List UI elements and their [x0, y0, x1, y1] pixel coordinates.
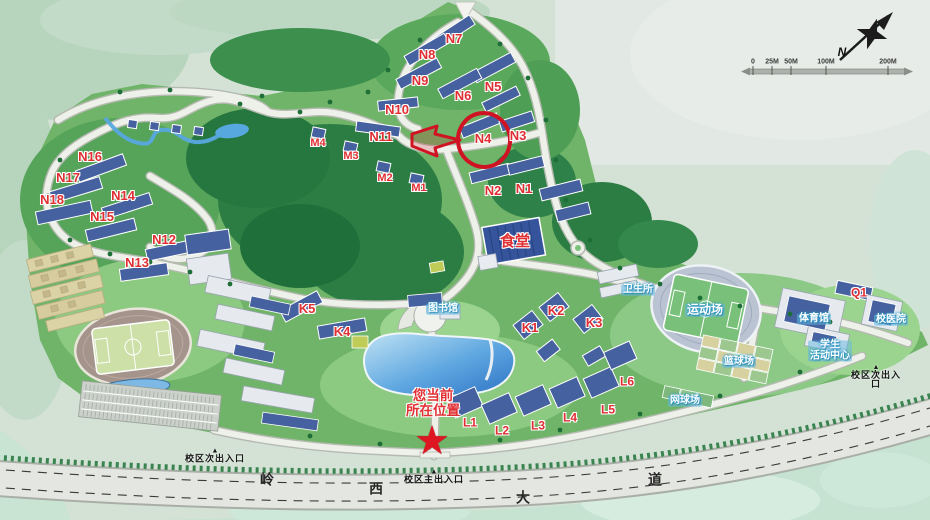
campus-map: N1N2N3N4N5N6N7N8N9N10N11N12N13N14N15N16N… [0, 0, 930, 520]
compass-north-label: N [838, 45, 847, 59]
campus-map-canvas [0, 0, 930, 520]
current-location-label: 您当前所在位置 [406, 389, 460, 419]
current-location-star: ★ [414, 421, 450, 461]
